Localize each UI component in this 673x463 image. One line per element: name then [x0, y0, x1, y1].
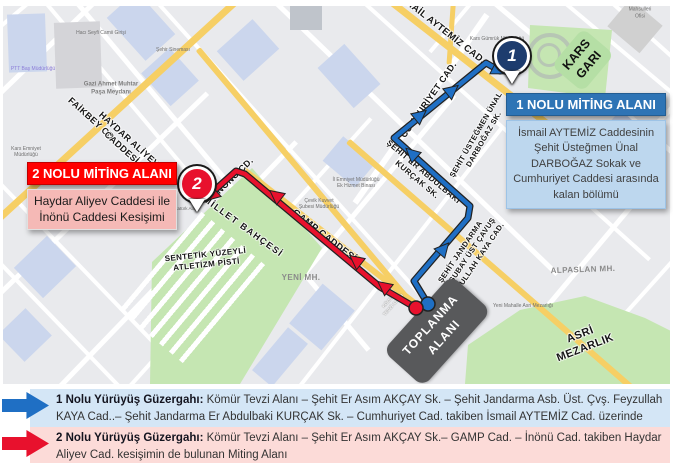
miting-area-2-infobox: 2 NOLU MİTİNG ALANI Haydar Aliyev Caddes…	[27, 162, 177, 230]
miting-area-1-title: 1 NOLU MİTİNG ALANI	[506, 93, 666, 116]
route-legend: 1 Nolu Yürüyüş Güzergahı: Kömür Tevzi Al…	[0, 386, 673, 463]
legend-route-2: 2 Nolu Yürüyüş Güzergahı: Kömür Tevzi Al…	[30, 427, 670, 463]
city-map: Gazi Ahmet Muhtar Paşa Meydanı PTT Baş M…	[0, 0, 673, 384]
route-2-red	[201, 171, 423, 315]
pin-1-tail	[504, 71, 520, 84]
miting-area-2-title: 2 NOLU MİTİNG ALANI	[27, 162, 177, 185]
miting-area-1-infobox: 1 NOLU MİTİNG ALANI İsmail AYTEMİZ Cadde…	[506, 93, 666, 209]
miting-area-2-pin: 2	[178, 166, 216, 212]
route-1-blue	[394, 61, 509, 311]
pin-2-tail	[189, 199, 205, 212]
legend-route-1-label: 1 Nolu Yürüyüş Güzergahı:	[56, 394, 203, 406]
route-2-start-dot	[409, 301, 423, 315]
route-map-flyer: Gazi Ahmet Muhtar Paşa Meydanı PTT Baş M…	[0, 0, 673, 463]
miting-area-2-description: Haydar Aliyev Caddesi ile İnönü Caddesi …	[27, 189, 177, 230]
pin-1-balloon: 1	[494, 38, 530, 74]
miting-area-1-description: İsmail AYTEMİZ Caddesinin Şehit Üsteğmen…	[506, 120, 666, 209]
pin-2-balloon: 2	[179, 166, 215, 202]
legend-route-2-label: 2 Nolu Yürüyüş Güzergahı:	[56, 432, 203, 444]
miting-area-1-pin: 1	[493, 38, 531, 84]
